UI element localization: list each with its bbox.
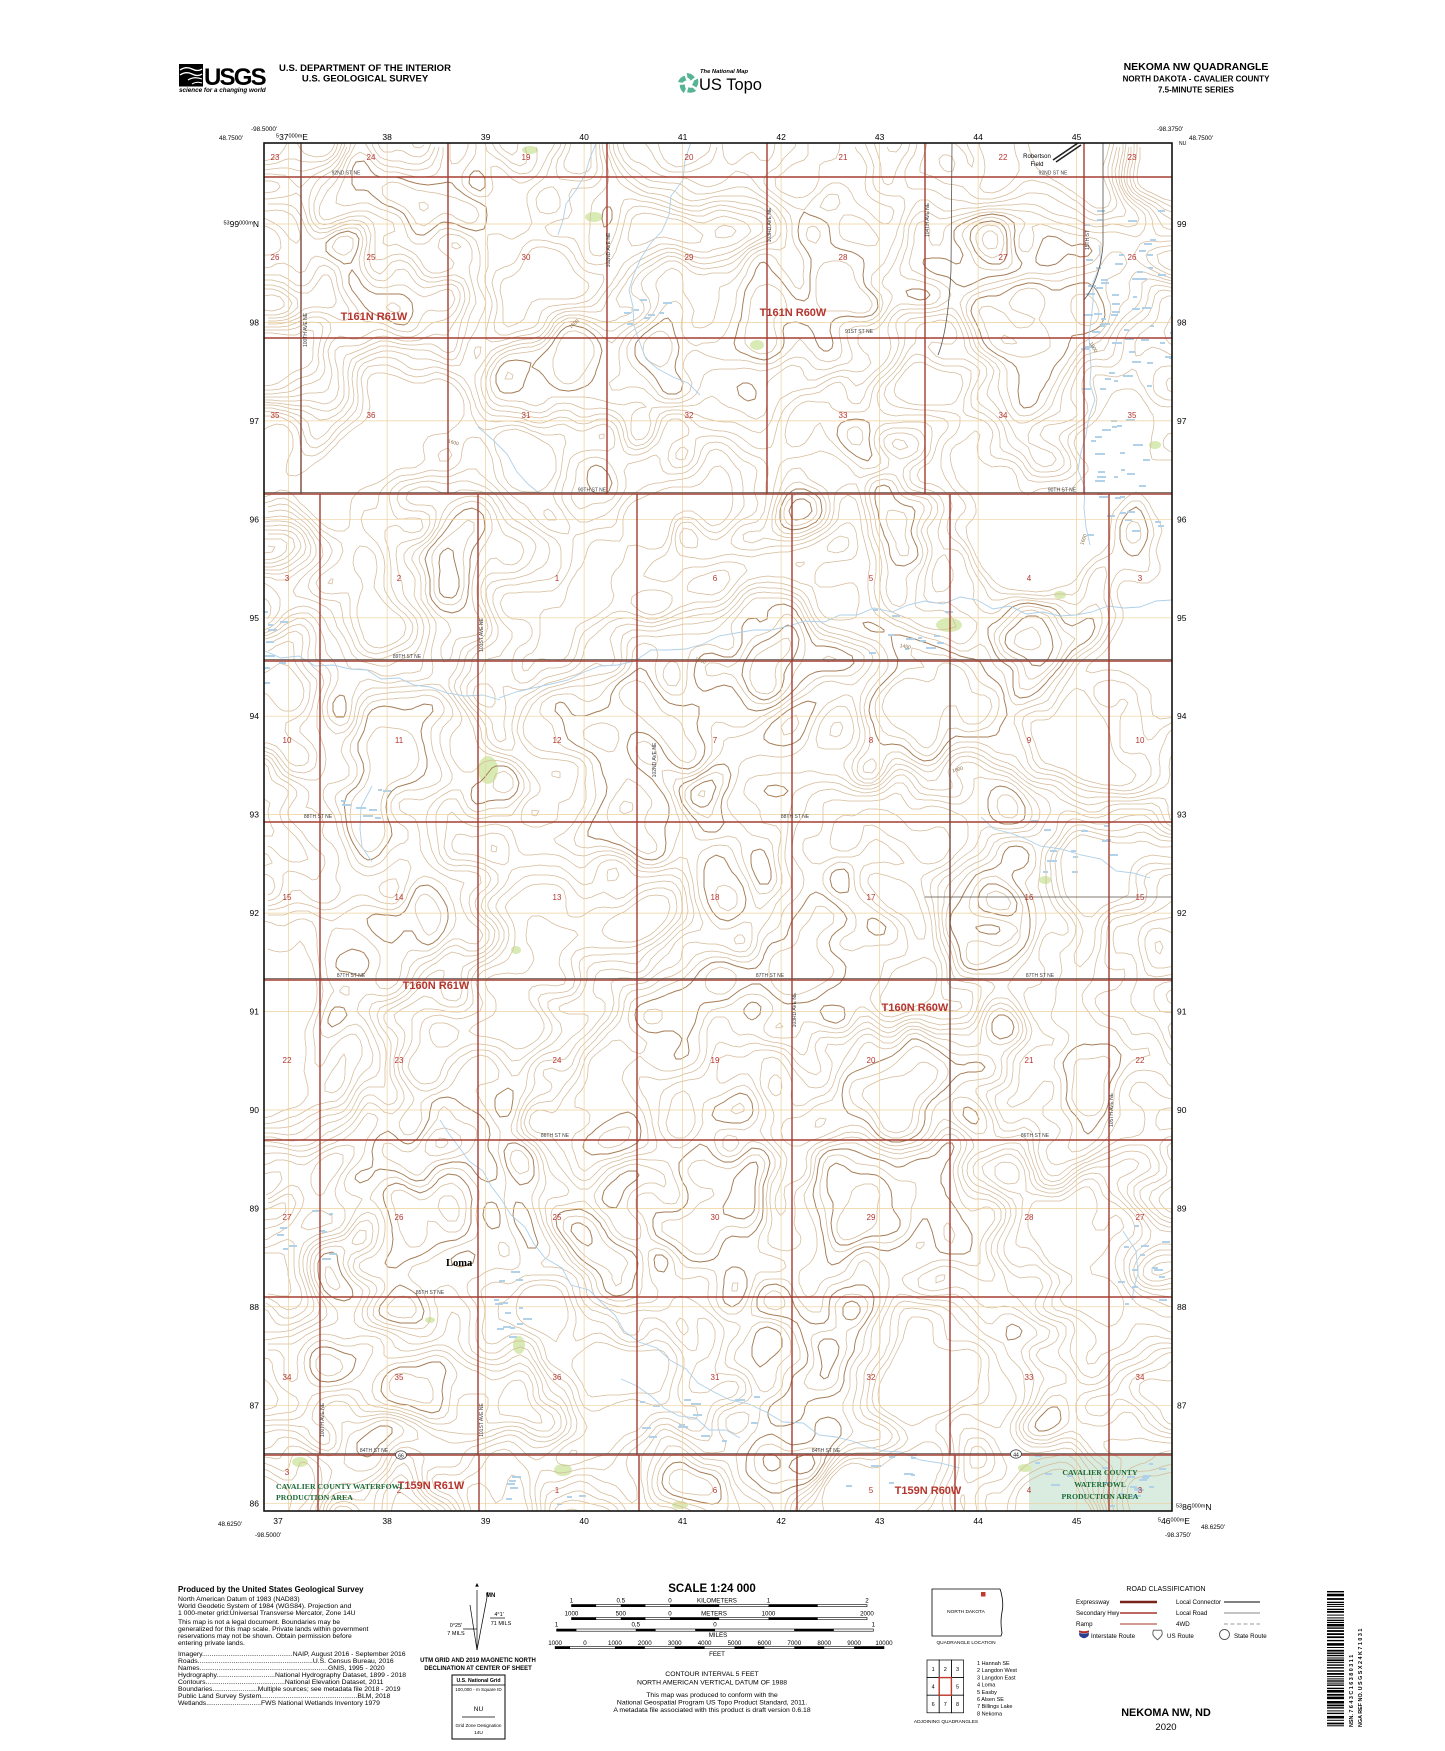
svg-text:23: 23 xyxy=(271,153,280,162)
svg-text:26: 26 xyxy=(395,1213,404,1222)
svg-text:KILOMETERS: KILOMETERS xyxy=(697,1598,737,1605)
svg-text:1000: 1000 xyxy=(548,1640,562,1647)
svg-text:30: 30 xyxy=(711,1213,720,1222)
svg-text:27: 27 xyxy=(999,253,1008,262)
svg-text:Contours......................: Contours................................… xyxy=(178,1679,384,1686)
svg-text:71 MILS: 71 MILS xyxy=(491,1621,512,1627)
svg-text:36: 36 xyxy=(367,411,376,420)
svg-text:87: 87 xyxy=(1177,1400,1187,1410)
svg-text:20: 20 xyxy=(867,1056,876,1065)
svg-text:4°1': 4°1' xyxy=(494,1612,503,1618)
svg-text:45: 45 xyxy=(1072,1516,1082,1526)
svg-text:87TH ST NE: 87TH ST NE xyxy=(1026,973,1055,979)
svg-text:18: 18 xyxy=(711,893,720,902)
svg-text:29: 29 xyxy=(867,1213,876,1222)
svg-text:25: 25 xyxy=(553,1213,562,1222)
svg-text:15: 15 xyxy=(1136,893,1145,902)
svg-text:5000: 5000 xyxy=(728,1640,742,1647)
svg-text:World Geodetic System of 1984: World Geodetic System of 1984 (WGS84). P… xyxy=(178,1603,351,1610)
svg-text:PRODUCTION AREA: PRODUCTION AREA xyxy=(1062,1492,1139,1501)
svg-text:NORTH AMERICAN VERTICAL DATUM: NORTH AMERICAN VERTICAL DATUM OF 1988 xyxy=(637,1680,787,1687)
svg-text:4 Loma: 4 Loma xyxy=(977,1683,996,1689)
svg-text:CAVALIER COUNTY WATERFOWL: CAVALIER COUNTY WATERFOWL xyxy=(276,1482,405,1491)
svg-text:29: 29 xyxy=(685,253,694,262)
svg-text:Public Land Survey System.....: Public Land Survey System...............… xyxy=(178,1693,391,1700)
svg-text:5: 5 xyxy=(869,1486,874,1495)
svg-text:34: 34 xyxy=(999,411,1008,420)
svg-text:-98.3750': -98.3750' xyxy=(1165,1532,1191,1539)
svg-text:US Topo: US Topo xyxy=(699,76,762,94)
svg-text:1: 1 xyxy=(555,1622,559,1629)
svg-text:6000: 6000 xyxy=(758,1640,772,1647)
svg-text:22: 22 xyxy=(283,1056,292,1065)
svg-text:Names.........................: Names...................................… xyxy=(178,1665,385,1672)
svg-text:93: 93 xyxy=(250,810,260,820)
svg-text:94: 94 xyxy=(1177,711,1187,721)
svg-text:84TH ST NE: 84TH ST NE xyxy=(812,1448,841,1454)
svg-text:48.6250': 48.6250' xyxy=(218,1521,242,1528)
svg-text:87: 87 xyxy=(250,1400,260,1410)
svg-text:32: 32 xyxy=(867,1373,876,1382)
svg-text:14: 14 xyxy=(395,893,404,902)
svg-text:PRODUCTION AREA: PRODUCTION AREA xyxy=(276,1493,353,1502)
svg-text:23: 23 xyxy=(395,1056,404,1065)
svg-text:Produced by the United States: Produced by the United States Geological… xyxy=(178,1585,364,1594)
svg-text:39: 39 xyxy=(481,132,491,142)
svg-text:WATERFOWL: WATERFOWL xyxy=(1074,1480,1126,1489)
svg-text:92: 92 xyxy=(250,908,260,918)
svg-text:10: 10 xyxy=(1136,736,1145,745)
svg-text:3: 3 xyxy=(1138,1486,1143,1495)
svg-text:87TH ST NE: 87TH ST NE xyxy=(337,973,366,979)
svg-text:37: 37 xyxy=(273,1516,283,1526)
svg-text:Loma: Loma xyxy=(446,1258,473,1269)
svg-text:22: 22 xyxy=(1136,1056,1145,1065)
svg-text:Roads.........................: Roads...................................… xyxy=(178,1658,394,1665)
svg-text:METERS: METERS xyxy=(701,1611,727,1618)
svg-text:Interstate Route: Interstate Route xyxy=(1091,1633,1136,1640)
svg-text:6: 6 xyxy=(713,1486,718,1495)
svg-text:3: 3 xyxy=(285,574,290,583)
svg-text:38: 38 xyxy=(382,132,392,142)
svg-text:U.S. GEOLOGICAL SURVEY: U.S. GEOLOGICAL SURVEY xyxy=(302,74,429,85)
svg-text:DECLINATION AT CENTER OF SHEET: DECLINATION AT CENTER OF SHEET xyxy=(424,1666,532,1672)
svg-text:NU: NU xyxy=(474,1706,484,1713)
svg-text:27: 27 xyxy=(283,1213,292,1222)
svg-text:101ST AVE NE: 101ST AVE NE xyxy=(479,617,485,651)
svg-text:104TH AVE NE: 104TH AVE NE xyxy=(925,202,931,237)
svg-text:45: 45 xyxy=(1072,132,1082,142)
svg-text:National Geospatial Program US: National Geospatial Program US Topo Prod… xyxy=(617,1700,807,1707)
svg-text:31: 31 xyxy=(522,411,531,420)
svg-text:100,000 - m Square ID: 100,000 - m Square ID xyxy=(455,1687,502,1692)
svg-text:86TH ST NE: 86TH ST NE xyxy=(541,1133,570,1139)
svg-text:15TH ST: 15TH ST xyxy=(1085,230,1091,250)
svg-text:entering private lands.: entering private lands. xyxy=(178,1640,245,1647)
svg-text:19: 19 xyxy=(711,1056,720,1065)
svg-text:U.S. National Grid: U.S. National Grid xyxy=(456,1678,500,1684)
svg-text:500: 500 xyxy=(616,1611,627,1618)
svg-text:8 Nekoma: 8 Nekoma xyxy=(977,1711,1003,1717)
svg-text:reservations may not be shown.: reservations may not be shown. Obtain pe… xyxy=(178,1633,352,1640)
svg-text:38: 38 xyxy=(382,1516,392,1526)
svg-text:1000: 1000 xyxy=(608,1640,622,1647)
svg-text:9: 9 xyxy=(1027,736,1032,745)
svg-text:24: 24 xyxy=(553,1056,562,1065)
svg-text:ADJOINING QUADRANGLES: ADJOINING QUADRANGLES xyxy=(914,1719,978,1725)
svg-text:41: 41 xyxy=(678,132,688,142)
svg-text:92ND ST NE: 92ND ST NE xyxy=(1039,171,1068,177)
svg-text:0: 0 xyxy=(583,1640,587,1647)
svg-text:10000: 10000 xyxy=(875,1640,893,1647)
svg-text:44: 44 xyxy=(973,132,983,142)
svg-text:5: 5 xyxy=(869,574,874,583)
svg-text:90TH ST NE: 90TH ST NE xyxy=(578,488,607,494)
svg-text:5 Easby: 5 Easby xyxy=(977,1690,997,1696)
svg-text:10: 10 xyxy=(283,736,292,745)
svg-text:4: 4 xyxy=(1027,574,1032,583)
svg-text:This map was produced to confo: This map was produced to conform with th… xyxy=(646,1692,778,1699)
svg-text:8000: 8000 xyxy=(817,1640,831,1647)
svg-text:6 Alsen SE: 6 Alsen SE xyxy=(977,1697,1004,1703)
svg-text:35: 35 xyxy=(395,1373,404,1382)
svg-text:16: 16 xyxy=(1025,893,1034,902)
svg-text:The National Map: The National Map xyxy=(700,69,748,75)
svg-text:11: 11 xyxy=(395,736,404,745)
svg-text:MN: MN xyxy=(486,1593,495,1599)
svg-text:90: 90 xyxy=(1177,1105,1187,1115)
svg-text:NEKOMA NW QUADRANGLE: NEKOMA NW QUADRANGLE xyxy=(1124,61,1269,73)
svg-text:2000: 2000 xyxy=(860,1611,874,1618)
svg-text:State Route: State Route xyxy=(1234,1633,1267,1640)
svg-text:89TH ST NE: 89TH ST NE xyxy=(393,654,422,660)
svg-text:100TH AVE NE: 100TH AVE NE xyxy=(303,312,309,347)
svg-text:Secondary Hwy: Secondary Hwy xyxy=(1076,1610,1120,1617)
svg-text:96: 96 xyxy=(1177,514,1187,524)
svg-text:86: 86 xyxy=(250,1499,260,1509)
svg-text:Wetlands......................: Wetlands.............................FWS… xyxy=(178,1700,380,1707)
svg-text:86TH ST NE: 86TH ST NE xyxy=(1021,1133,1050,1139)
svg-text:Field: Field xyxy=(1030,162,1043,168)
svg-text:US Route: US Route xyxy=(1167,1633,1194,1640)
svg-text:3 Langdon East: 3 Langdon East xyxy=(977,1675,1016,1681)
svg-text:Grid Zone Designation: Grid Zone Designation xyxy=(456,1723,502,1728)
svg-text:T159N R60W: T159N R60W xyxy=(895,1485,962,1497)
svg-text:99: 99 xyxy=(1177,219,1187,229)
svg-text:1: 1 xyxy=(767,1598,771,1605)
svg-text:13: 13 xyxy=(553,893,562,902)
svg-text:95: 95 xyxy=(250,613,260,623)
svg-text:U.S. DEPARTMENT OF THE INTERIO: U.S. DEPARTMENT OF THE INTERIOR xyxy=(279,63,451,74)
svg-text:22: 22 xyxy=(999,153,1008,162)
svg-text:SCALE 1:24 000: SCALE 1:24 000 xyxy=(668,1583,756,1595)
svg-text:21: 21 xyxy=(1025,1056,1034,1065)
svg-text:ROAD CLASSIFICATION: ROAD CLASSIFICATION xyxy=(1126,1586,1205,1593)
svg-text:88: 88 xyxy=(250,1302,260,1312)
svg-text:0: 0 xyxy=(713,1622,717,1629)
svg-text:NORTH DAKOTA: NORTH DAKOTA xyxy=(947,1609,985,1615)
svg-text:1 000-meter grid:Universal Tra: 1 000-meter grid:Universal Transverse Me… xyxy=(178,1610,356,1617)
svg-text:12: 12 xyxy=(553,736,562,745)
svg-text:25: 25 xyxy=(367,253,376,262)
svg-text:90TH ST NE: 90TH ST NE xyxy=(1048,488,1077,494)
svg-text:-98.5000': -98.5000' xyxy=(251,126,277,133)
svg-text:NU: NU xyxy=(1179,141,1187,147)
svg-text:97: 97 xyxy=(250,416,260,426)
svg-text:Local Connector: Local Connector xyxy=(1176,1599,1221,1606)
svg-text:7: 7 xyxy=(944,1702,947,1708)
svg-text:19: 19 xyxy=(522,153,531,162)
svg-text:NEKOMA NW, ND: NEKOMA NW, ND xyxy=(1121,1707,1211,1719)
svg-text:science for a changing world: science for a changing world xyxy=(179,87,266,94)
svg-text:3: 3 xyxy=(285,1468,290,1477)
svg-text:93: 93 xyxy=(1177,810,1187,820)
svg-text:1: 1 xyxy=(555,1486,560,1495)
svg-text:2020: 2020 xyxy=(1155,1722,1176,1733)
svg-text:96: 96 xyxy=(250,514,260,524)
svg-text:9000: 9000 xyxy=(847,1640,861,1647)
svg-text:15: 15 xyxy=(283,893,292,902)
svg-text:84TH ST NE: 84TH ST NE xyxy=(360,1448,389,1454)
svg-text:33: 33 xyxy=(1025,1373,1034,1382)
svg-text:34: 34 xyxy=(1136,1373,1145,1382)
svg-text:40: 40 xyxy=(579,132,589,142)
svg-text:NGA REF NO. U S G S X 2 4 K 7: NGA REF NO. U S G S X 2 4 K 7 1 0 3 1 xyxy=(1358,1629,1364,1727)
svg-text:-98.3750': -98.3750' xyxy=(1157,126,1183,133)
svg-text:T159N R61W: T159N R61W xyxy=(398,1480,465,1492)
svg-text:Local Road: Local Road xyxy=(1176,1610,1208,1617)
svg-text:101ST AVE NE: 101ST AVE NE xyxy=(479,1402,485,1436)
svg-text:20: 20 xyxy=(685,153,694,162)
svg-text:31: 31 xyxy=(711,1373,720,1382)
svg-text:34: 34 xyxy=(283,1373,292,1382)
svg-text:0: 0 xyxy=(668,1611,672,1618)
svg-text:CONTOUR INTERVAL 5 FEET: CONTOUR INTERVAL 5 FEET xyxy=(665,1671,758,1678)
svg-text:0.5: 0.5 xyxy=(616,1598,625,1605)
svg-text:Hydrography...................: Hydrography.............................… xyxy=(178,1672,406,1679)
svg-text:91ST ST NE: 91ST ST NE xyxy=(845,329,874,335)
svg-text:T161N R60W: T161N R60W xyxy=(760,307,827,319)
svg-text:91: 91 xyxy=(1177,1007,1187,1017)
svg-text:1 Hannah SE: 1 Hannah SE xyxy=(977,1661,1010,1667)
svg-text:3: 3 xyxy=(956,1667,959,1673)
svg-text:T161N R61W: T161N R61W xyxy=(341,311,408,323)
svg-text:2: 2 xyxy=(397,574,402,583)
svg-text:33: 33 xyxy=(839,411,848,420)
svg-text:-98.5000': -98.5000' xyxy=(255,1532,281,1539)
svg-text:1000: 1000 xyxy=(762,1611,776,1618)
svg-text:44: 44 xyxy=(1013,1453,1019,1459)
svg-text:0°25': 0°25' xyxy=(450,1623,462,1629)
svg-text:35: 35 xyxy=(271,411,280,420)
svg-text:North American Datum of 1983 (: North American Datum of 1983 (NAD83) xyxy=(178,1596,300,1603)
svg-text:88TH ST NE: 88TH ST NE xyxy=(781,814,810,820)
svg-text:NSN. 7 6 4 3 C 1 6 3 8 0 3 1: NSN. 7 6 4 3 C 1 6 3 8 0 3 1 1 xyxy=(1349,1655,1355,1727)
svg-text:28: 28 xyxy=(839,253,848,262)
svg-text:1: 1 xyxy=(570,1598,574,1605)
svg-text:T160N R60W: T160N R60W xyxy=(882,1002,949,1014)
svg-text:17: 17 xyxy=(867,893,876,902)
svg-text:42: 42 xyxy=(776,132,786,142)
svg-text:6: 6 xyxy=(713,574,718,583)
svg-text:35: 35 xyxy=(1128,411,1137,420)
svg-text:30: 30 xyxy=(522,253,531,262)
svg-text:94: 94 xyxy=(250,711,260,721)
svg-text:14U: 14U xyxy=(474,1730,483,1736)
svg-text:32: 32 xyxy=(685,411,694,420)
svg-text:4WD: 4WD xyxy=(1176,1621,1190,1628)
svg-text:66: 66 xyxy=(398,1454,404,1460)
svg-text:Ramp: Ramp xyxy=(1076,1621,1093,1628)
svg-text:36: 36 xyxy=(553,1373,562,1382)
svg-text:Robertson: Robertson xyxy=(1023,154,1051,160)
svg-text:5: 5 xyxy=(956,1684,959,1690)
svg-text:97: 97 xyxy=(1177,416,1187,426)
svg-text:3: 3 xyxy=(1138,574,1143,583)
svg-text:102ND AVE NE: 102ND AVE NE xyxy=(606,232,612,267)
svg-text:UTM GRID AND 2019 MAGNETIC NOR: UTM GRID AND 2019 MAGNETIC NORTH xyxy=(420,1658,536,1664)
svg-text:4000: 4000 xyxy=(698,1640,712,1647)
svg-text:42: 42 xyxy=(776,1516,786,1526)
svg-text:48.7500': 48.7500' xyxy=(1189,135,1213,142)
svg-text:90: 90 xyxy=(250,1105,260,1115)
svg-text:2000: 2000 xyxy=(638,1640,652,1647)
svg-text:2: 2 xyxy=(865,1598,869,1605)
svg-text:1: 1 xyxy=(555,574,560,583)
svg-text:28: 28 xyxy=(1025,1213,1034,1222)
svg-text:MILES: MILES xyxy=(709,1632,728,1639)
svg-text:1: 1 xyxy=(932,1667,935,1673)
svg-text:7 MILS: 7 MILS xyxy=(447,1631,465,1637)
svg-text:26: 26 xyxy=(271,253,280,262)
svg-text:26: 26 xyxy=(1128,253,1137,262)
svg-text:7000: 7000 xyxy=(787,1640,801,1647)
svg-text:103RD AVE NE: 103RD AVE NE xyxy=(792,992,798,1027)
svg-text:1000: 1000 xyxy=(565,1611,579,1618)
svg-text:NORTH DAKOTA - CAVALIER COUNTY: NORTH DAKOTA - CAVALIER COUNTY xyxy=(1123,75,1270,84)
svg-text:Expressway: Expressway xyxy=(1076,1599,1110,1606)
svg-text:100TH AVE NE: 100TH AVE NE xyxy=(320,1402,326,1437)
svg-text:2: 2 xyxy=(944,1667,947,1673)
svg-text:48.7500': 48.7500' xyxy=(219,135,243,142)
svg-text:95: 95 xyxy=(1177,613,1187,623)
svg-text:Imagery.......................: Imagery.................................… xyxy=(178,1651,406,1658)
svg-text:2 Langdon West: 2 Langdon West xyxy=(977,1668,1017,1674)
svg-text:23: 23 xyxy=(1128,153,1137,162)
svg-text:21: 21 xyxy=(839,153,848,162)
svg-text:3000: 3000 xyxy=(668,1640,682,1647)
svg-text:7.5-MINUTE SERIES: 7.5-MINUTE SERIES xyxy=(1158,86,1235,95)
svg-text:8: 8 xyxy=(869,736,874,745)
svg-text:43: 43 xyxy=(875,1516,885,1526)
svg-text:92: 92 xyxy=(1177,908,1187,918)
svg-text:91: 91 xyxy=(250,1007,260,1017)
svg-text:48.6250': 48.6250' xyxy=(1201,1524,1225,1531)
svg-text:105TH AVE NE: 105TH AVE NE xyxy=(1109,1092,1115,1127)
svg-text:0: 0 xyxy=(668,1598,672,1605)
svg-text:92ND ST NE: 92ND ST NE xyxy=(332,171,361,177)
svg-text:QUADRANGLE LOCATION: QUADRANGLE LOCATION xyxy=(936,1640,996,1646)
svg-text:T160N R61W: T160N R61W xyxy=(403,980,470,992)
svg-text:generalized for this map scale: generalized for this map scale. Private … xyxy=(178,1626,369,1633)
svg-text:A metadata file associated wit: A metadata file associated with this pro… xyxy=(613,1707,810,1714)
svg-text:8: 8 xyxy=(956,1702,959,1708)
svg-text:85TH ST NE: 85TH ST NE xyxy=(416,1290,445,1296)
svg-text:44: 44 xyxy=(973,1516,983,1526)
svg-text:6: 6 xyxy=(932,1702,935,1708)
svg-text:24: 24 xyxy=(367,153,376,162)
svg-text:1: 1 xyxy=(872,1622,876,1629)
svg-text:98: 98 xyxy=(250,317,260,327)
svg-text:102ND AVE NE: 102ND AVE NE xyxy=(652,742,658,777)
svg-text:FEET: FEET xyxy=(709,1651,725,1658)
svg-text:89: 89 xyxy=(250,1203,260,1213)
svg-text:89: 89 xyxy=(1177,1203,1187,1213)
svg-text:4: 4 xyxy=(1027,1486,1032,1495)
svg-text:Boundaries....................: Boundaries........................Multip… xyxy=(178,1686,401,1693)
svg-text:88: 88 xyxy=(1177,1302,1187,1312)
svg-text:98: 98 xyxy=(1177,317,1187,327)
svg-text:41: 41 xyxy=(678,1516,688,1526)
svg-text:CAVALIER COUNTY: CAVALIER COUNTY xyxy=(1062,1468,1138,1477)
svg-text:4: 4 xyxy=(932,1684,935,1690)
svg-text:88TH ST NE: 88TH ST NE xyxy=(304,814,333,820)
svg-text:This map is not a legal docume: This map is not a legal document. Bounda… xyxy=(178,1619,340,1626)
svg-text:0,5: 0,5 xyxy=(631,1622,640,1629)
svg-text:7: 7 xyxy=(713,736,718,745)
svg-text:103RD AVE NE: 103RD AVE NE xyxy=(767,207,773,242)
svg-text:39: 39 xyxy=(481,1516,491,1526)
svg-text:7 Billings Lake: 7 Billings Lake xyxy=(977,1704,1012,1710)
svg-text:40: 40 xyxy=(579,1516,589,1526)
svg-text:43: 43 xyxy=(875,132,885,142)
svg-text:27: 27 xyxy=(1136,1213,1145,1222)
svg-text:87TH ST NE: 87TH ST NE xyxy=(756,973,785,979)
